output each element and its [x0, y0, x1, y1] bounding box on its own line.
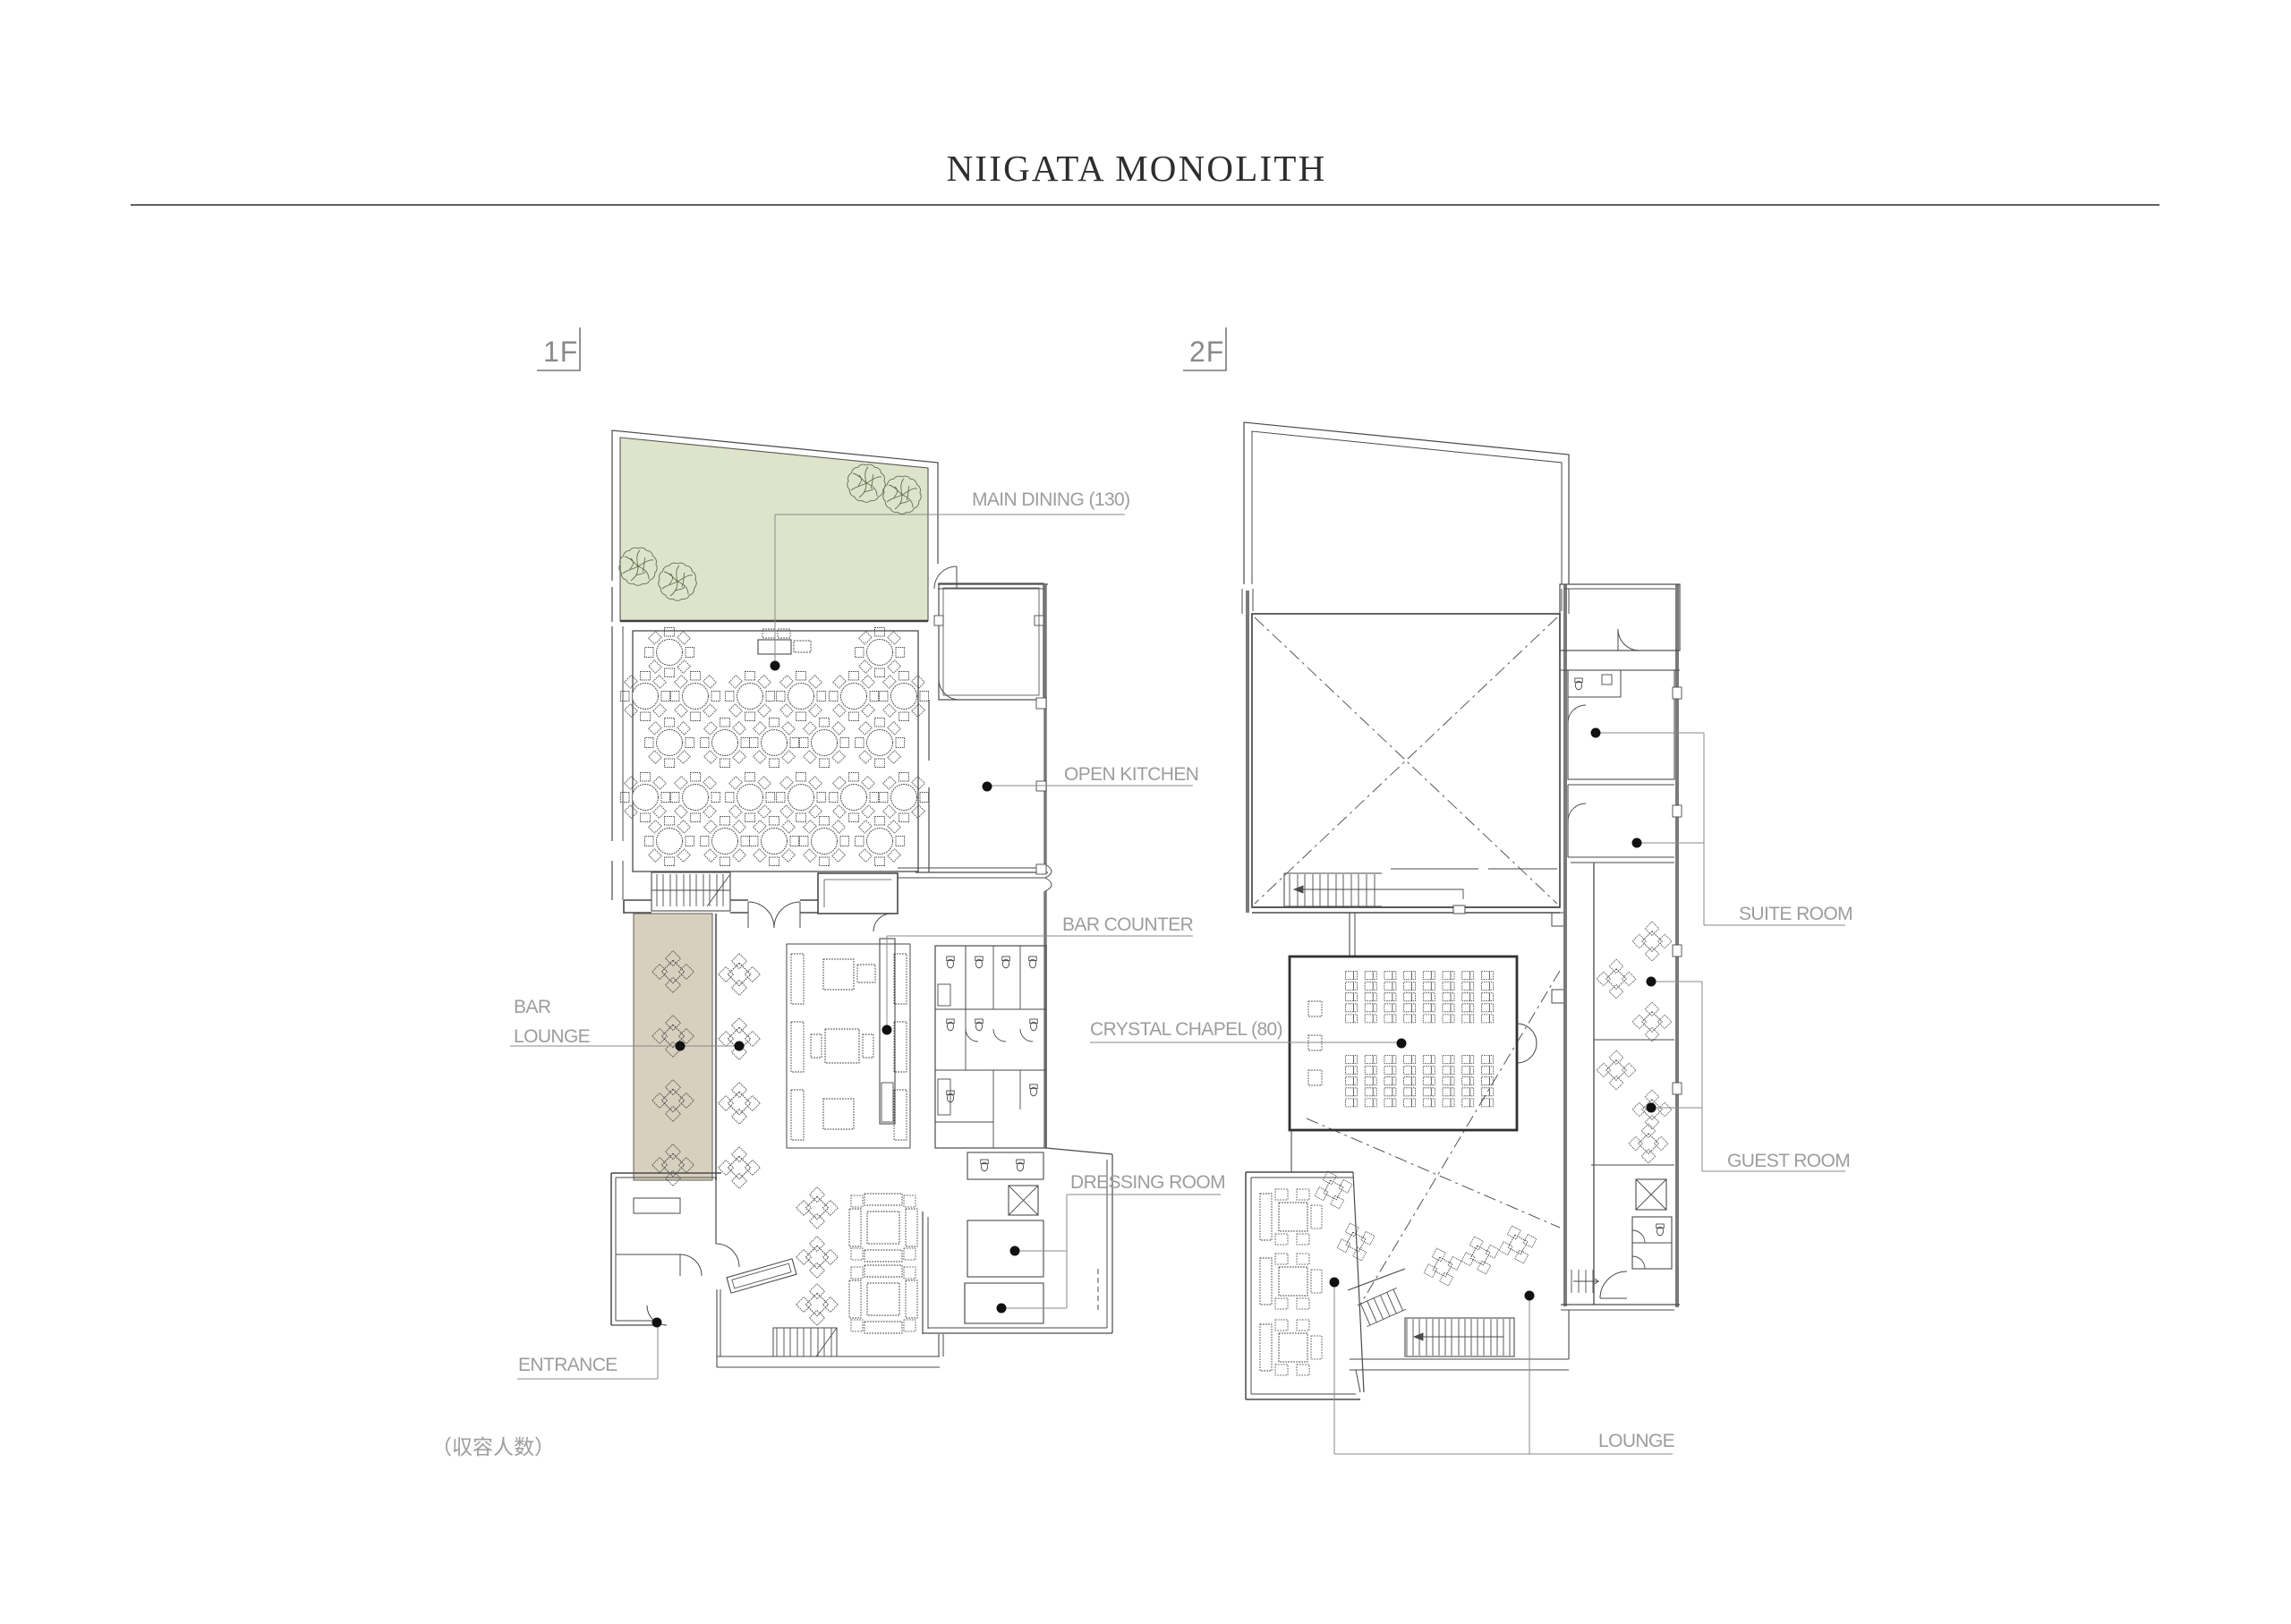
svg-text:（収容人数）: （収容人数） [431, 1435, 555, 1458]
svg-text:BAR: BAR [514, 997, 551, 1017]
svg-text:NIIGATA MONOLITH: NIIGATA MONOLITH [947, 148, 1327, 189]
svg-text:CRYSTAL CHAPEL (80): CRYSTAL CHAPEL (80) [1090, 1019, 1282, 1040]
svg-text:GUEST ROOM: GUEST ROOM [1727, 1151, 1850, 1171]
svg-text:DRESSING ROOM: DRESSING ROOM [1070, 1172, 1225, 1193]
svg-text:1F: 1F [543, 336, 578, 368]
svg-text:2F: 2F [1189, 336, 1224, 368]
svg-text:BAR COUNTER: BAR COUNTER [1062, 914, 1194, 935]
svg-text:MAIN DINING (130): MAIN DINING (130) [972, 489, 1130, 510]
svg-text:LOUNGE: LOUNGE [1598, 1431, 1675, 1451]
svg-text:LOUNGE: LOUNGE [514, 1026, 591, 1047]
svg-text:SUITE ROOM: SUITE ROOM [1739, 904, 1852, 924]
svg-text:ENTRANCE: ENTRANCE [518, 1355, 617, 1375]
svg-text:OPEN KITCHEN: OPEN KITCHEN [1064, 764, 1198, 785]
